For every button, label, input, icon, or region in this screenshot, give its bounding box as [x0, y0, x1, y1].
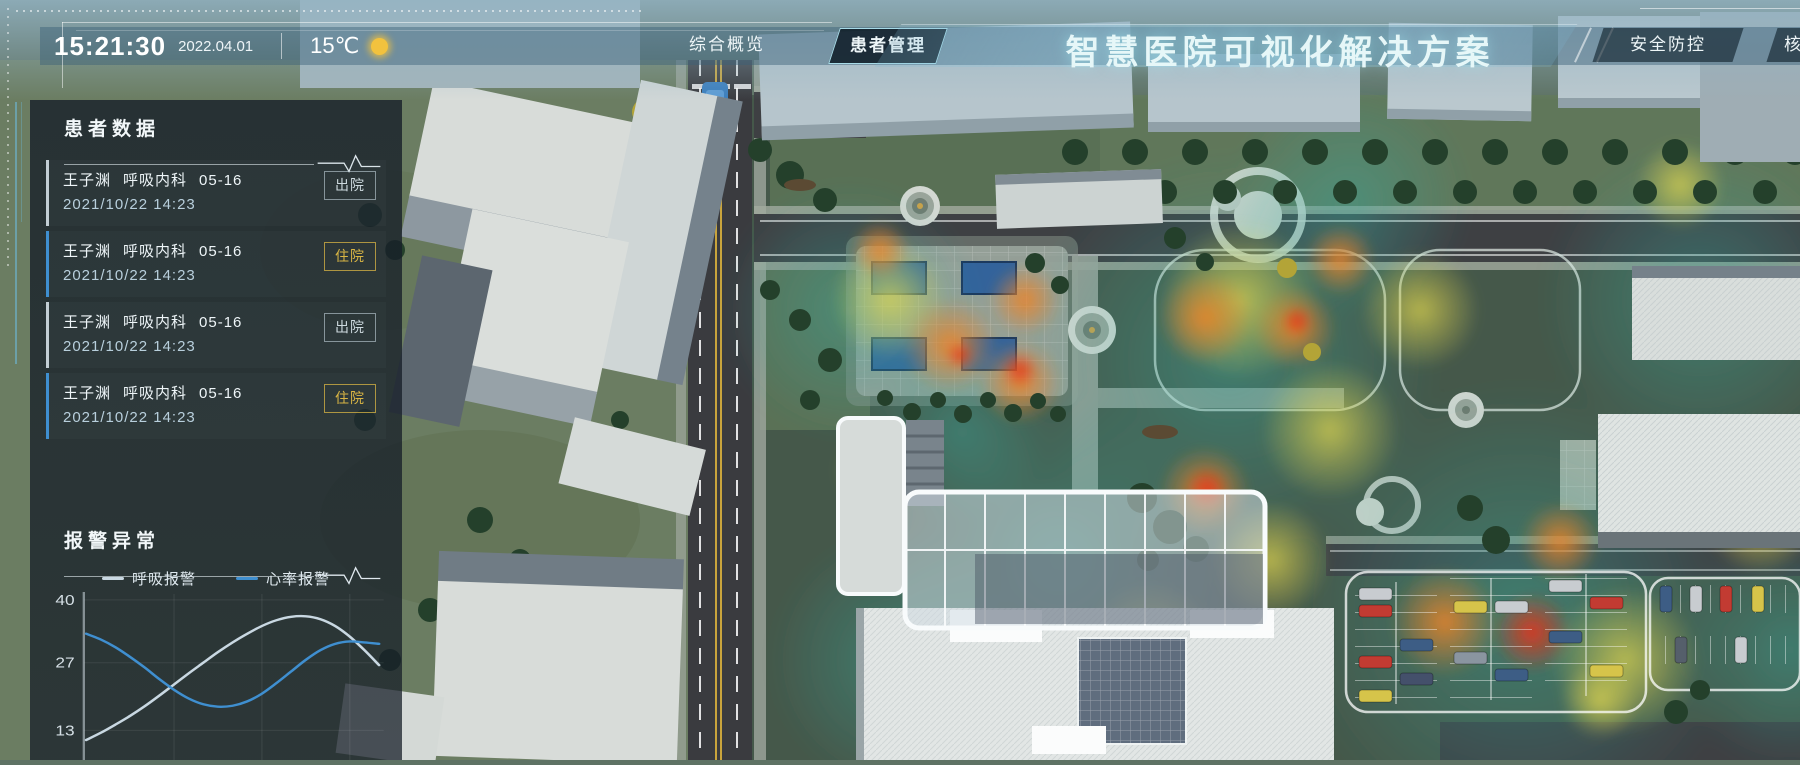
southeast-building	[1598, 414, 1800, 548]
patient-time: 2021/10/22 14:23	[63, 196, 254, 216]
legend-dash-icon	[102, 577, 124, 580]
status-badge: 出院	[324, 171, 376, 200]
legend-heart-rate[interactable]: 心率报警	[236, 568, 330, 589]
status-badge: 住院	[324, 242, 376, 271]
status-badge: 住院	[324, 384, 376, 413]
tab-overview-label: 综合概览	[689, 35, 765, 54]
panel-accent-line-2	[21, 102, 22, 222]
patient-time: 2021/10/22 14:23	[63, 338, 254, 358]
legend-label: 心率报警	[266, 568, 330, 589]
page-title: 智慧医院可视化解决方案	[1020, 25, 1540, 74]
patient-row[interactable]: 王子渊呼吸内科05-16 2021/10/22 14:23 住院	[46, 373, 386, 439]
tab-security-label: 安全防控	[1598, 28, 1738, 62]
patient-name: 王子渊	[63, 172, 111, 189]
legend-respiratory[interactable]: 呼吸报警	[102, 568, 196, 589]
panel-accent-line	[15, 102, 17, 364]
patient-bed: 05-16	[199, 172, 242, 189]
patient-name: 王子渊	[63, 243, 111, 260]
temperature: 15℃	[310, 33, 359, 59]
clock: 15:21:30	[54, 31, 166, 62]
patient-row[interactable]: 王子渊呼吸内科05-16 2021/10/22 14:23 出院	[46, 302, 386, 368]
sun-icon	[371, 38, 388, 55]
patient-bed: 05-16	[199, 243, 242, 260]
svg-text:40: 40	[55, 592, 74, 609]
patient-dept: 呼吸内科	[123, 243, 187, 260]
patient-row[interactable]: 王子渊呼吸内科05-16 2021/10/22 14:23 住院	[46, 231, 386, 297]
left-panel: 患者数据 王子渊呼吸内科05-16 2021/10/22 14:23 出院 王子…	[30, 100, 402, 760]
dotted-line-decoration	[16, 10, 646, 12]
patient-bed: 05-16	[199, 314, 242, 331]
tab-security[interactable]: 安全防控	[1592, 28, 1743, 62]
legend-label: 呼吸报警	[132, 568, 196, 589]
patient-name: 王子渊	[63, 385, 111, 402]
patient-time: 2021/10/22 14:23	[63, 267, 254, 287]
legend-dash-icon	[236, 577, 258, 580]
status-badge: 出院	[324, 313, 376, 342]
divider	[281, 33, 282, 59]
right-frame-line	[1640, 8, 1800, 9]
svg-text:13: 13	[55, 722, 74, 739]
patient-data-title: 患者数据	[64, 114, 382, 141]
patient-list: 王子渊呼吸内科05-16 2021/10/22 14:23 出院 王子渊呼吸内科…	[46, 160, 386, 444]
dotted-line-left	[7, 8, 9, 268]
tab-overview[interactable]: 综合概览	[652, 28, 802, 62]
frame-line	[62, 22, 832, 23]
hospital-main-building	[856, 608, 1334, 760]
patient-time: 2021/10/22 14:23	[63, 409, 254, 429]
date: 2022.04.01	[178, 38, 253, 55]
alarm-line-chart[interactable]: 402713	[40, 590, 386, 760]
patient-dept: 呼吸内科	[123, 385, 187, 402]
patient-bed: 05-16	[199, 385, 242, 402]
patient-dept: 呼吸内科	[123, 172, 187, 189]
chart-legend: 呼吸报警 心率报警	[50, 568, 382, 589]
patient-row[interactable]: 王子渊呼吸内科05-16 2021/10/22 14:23 出院	[46, 160, 386, 226]
patient-dept: 呼吸内科	[123, 314, 187, 331]
datetime-weather: 15:21:30 2022.04.01 15℃	[54, 27, 388, 65]
top-bar: 15:21:30 2022.04.01 15℃ 综合概览 患者管理 智慧医院可视…	[0, 0, 1800, 96]
tab-truncated-label: 核	[1784, 28, 1800, 62]
alarm-title: 报警异常	[64, 526, 382, 553]
svg-text:27: 27	[55, 655, 74, 672]
patient-name: 王子渊	[63, 314, 111, 331]
